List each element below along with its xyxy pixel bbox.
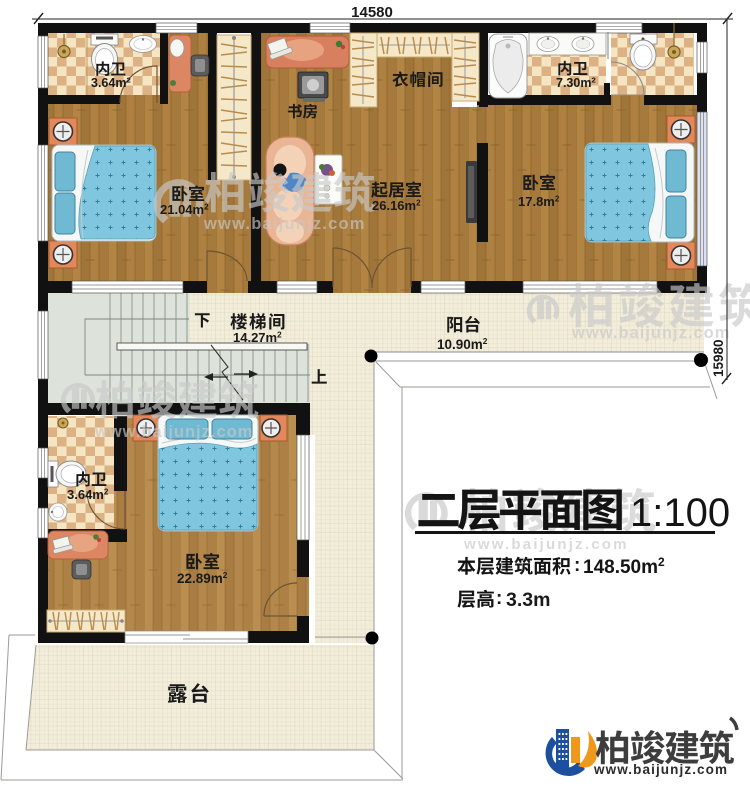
svg-text:www.baijunjz.com: www.baijunjz.com [571,324,730,342]
svg-text:14.27m2: 14.27m2 [233,330,282,345]
svg-text:10.90m2: 10.90m2 [437,336,488,352]
svg-text::: : [496,588,502,609]
svg-text:1:100: 1:100 [630,491,730,535]
svg-text::: : [574,555,580,576]
svg-text:21.04m2: 21.04m2 [160,202,209,217]
svg-text:3.64m2: 3.64m2 [67,487,109,502]
svg-text:22.89m2: 22.89m2 [177,570,228,586]
svg-text:www.baijunjz.com: www.baijunjz.com [203,215,366,233]
svg-text:www.baijunjz.com: www.baijunjz.com [463,536,629,553]
svg-text:3.3m: 3.3m [506,589,550,611]
svg-text:15980: 15980 [711,339,726,377]
svg-text:www.baijunjz.com: www.baijunjz.com [593,762,728,777]
svg-text:148.50m2: 148.50m2 [583,555,665,578]
svg-text:14580: 14580 [351,4,393,21]
svg-text:www.baijunjz.com: www.baijunjz.com [94,423,253,441]
svg-text:3.64m2: 3.64m2 [91,76,131,91]
svg-text:7.30m2: 7.30m2 [556,76,596,91]
svg-text:26.16m2: 26.16m2 [372,198,421,213]
svg-text:17.8m2: 17.8m2 [518,194,560,209]
